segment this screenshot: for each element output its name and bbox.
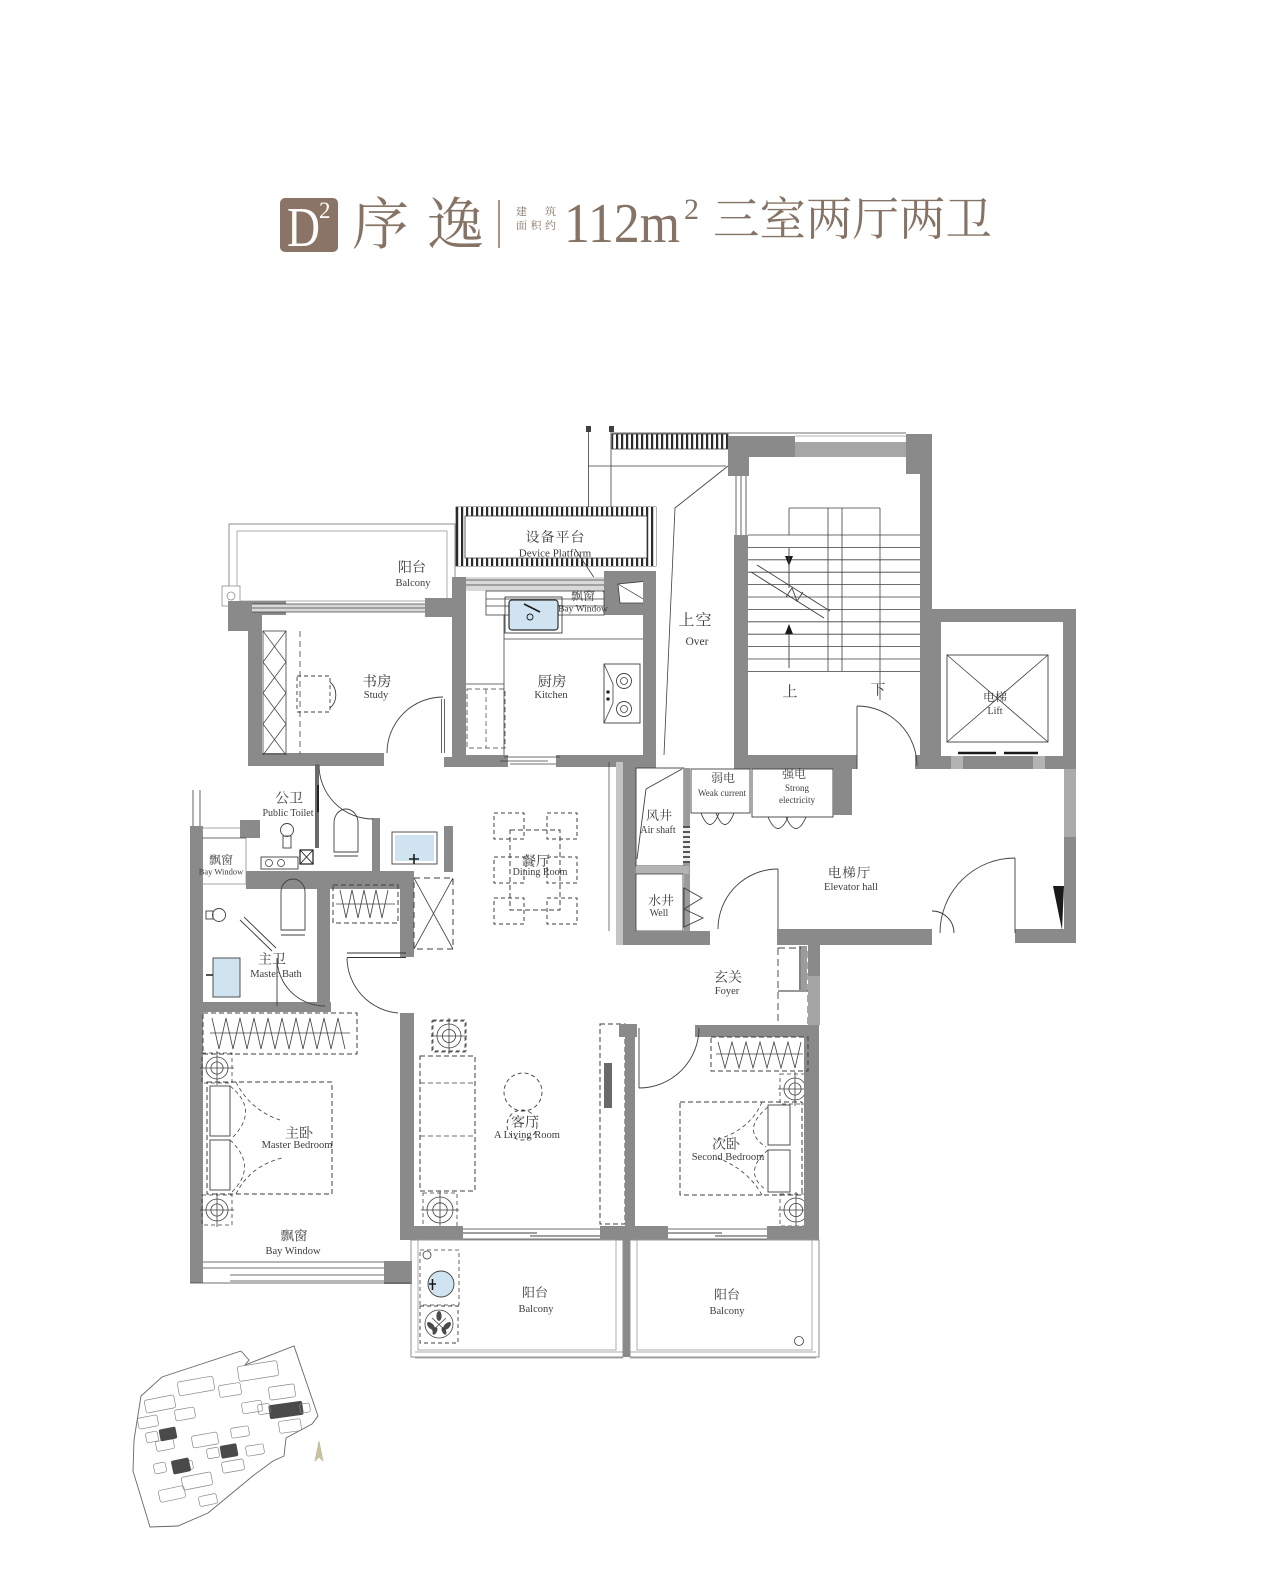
svg-text:A Living Room: A Living Room bbox=[494, 1130, 560, 1141]
svg-text:Master Bedroom: Master Bedroom bbox=[262, 1140, 333, 1151]
svg-text:Weak current: Weak current bbox=[698, 788, 746, 798]
svg-text:Balcony: Balcony bbox=[519, 1304, 555, 1315]
svg-text:Second Bedroom: Second Bedroom bbox=[692, 1152, 765, 1163]
svg-text:Balcony: Balcony bbox=[710, 1306, 746, 1317]
svg-text:Balcony: Balcony bbox=[396, 578, 432, 589]
svg-text:Public Toilet: Public Toilet bbox=[262, 808, 313, 819]
svg-text:Dining Room: Dining Room bbox=[513, 867, 568, 878]
svg-text:Master Bath: Master Bath bbox=[250, 969, 302, 980]
svg-text:Bay Window: Bay Window bbox=[558, 604, 608, 614]
svg-text:Air shaft: Air shaft bbox=[640, 825, 675, 836]
svg-text:Well: Well bbox=[650, 908, 669, 919]
svg-text:2: 2 bbox=[319, 198, 331, 223]
svg-text:Elevator hall: Elevator hall bbox=[824, 882, 878, 893]
svg-text:Kitchen: Kitchen bbox=[534, 690, 568, 701]
svg-text:electricity: electricity bbox=[779, 795, 815, 805]
svg-text:2: 2 bbox=[684, 193, 699, 226]
svg-text:Bay Window: Bay Window bbox=[265, 1246, 321, 1257]
svg-text:Bay Window: Bay Window bbox=[199, 867, 244, 877]
svg-text:Over: Over bbox=[686, 636, 709, 648]
svg-text:D: D bbox=[287, 197, 320, 259]
svg-text:Study: Study bbox=[364, 690, 389, 701]
svg-text:Foyer: Foyer bbox=[715, 986, 740, 997]
svg-text:Lift: Lift bbox=[988, 706, 1003, 717]
svg-text:Strong: Strong bbox=[785, 783, 810, 793]
svg-text:112m: 112m bbox=[564, 193, 680, 255]
